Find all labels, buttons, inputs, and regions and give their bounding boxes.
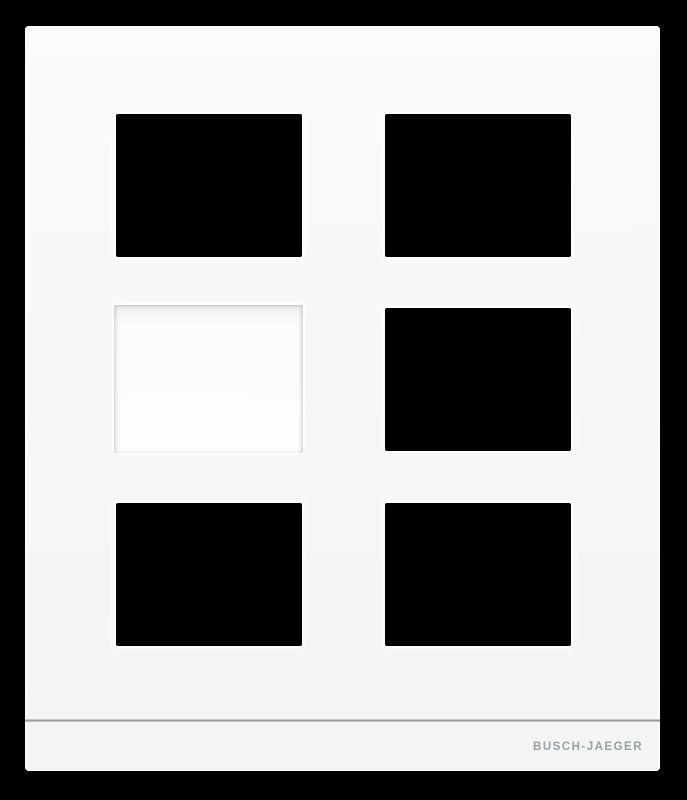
- module-opening-middle-right: [385, 308, 571, 451]
- faceplate-frame: BUSCH-JAEGER: [25, 26, 660, 771]
- blank-cover-middle-left: [114, 305, 303, 453]
- brand-logo: BUSCH-JAEGER: [533, 741, 643, 753]
- module-opening-top-right: [385, 114, 571, 257]
- module-opening-bottom-right: [385, 503, 571, 646]
- product-photo-background: BUSCH-JAEGER: [0, 0, 687, 800]
- module-opening-bottom-left: [116, 503, 302, 646]
- footer-strip: BUSCH-JAEGER: [25, 722, 660, 771]
- module-opening-top-left: [116, 114, 302, 257]
